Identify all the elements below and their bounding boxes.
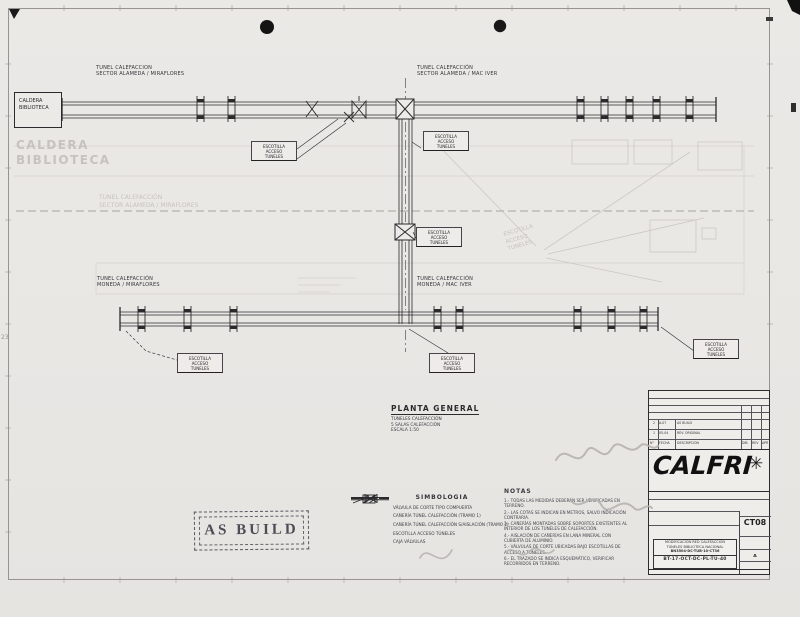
doc-revision-letter: A — [743, 554, 767, 559]
escotilla-callout: ESCOTILLAACCESOTUNELES — [429, 353, 475, 373]
rev-header-date: FECHA — [659, 441, 675, 445]
rev-header-no: N° — [650, 441, 658, 445]
caldera-biblioteca-box: CALDERABIBLIOTECA — [14, 92, 62, 128]
heating-pipes — [62, 102, 716, 326]
as-build-stamp: AS BUILD — [194, 510, 309, 550]
sheet-number: CT08 — [741, 518, 769, 527]
document-id-block: MODIFICACIÓN RED CALEFACCIÓN TÚNELES BIB… — [653, 539, 737, 569]
planta-general-title: PLANTA GENERAL TUNELES CALEFACCIÓN 5 SAL… — [391, 396, 509, 434]
margin-number: 23 — [1, 334, 9, 341]
drawing-code: BT-17-OCT-DC-PL-TU-40 — [654, 555, 736, 564]
rev-desc: AS BUILD — [677, 421, 739, 425]
ghost-sector-label: TUNEL CALEFACCIÓNSECTOR ALAMEDA / MIRAFL… — [99, 194, 198, 209]
ghost-caldera-label: CALDERABIBLIOTECA — [16, 138, 111, 168]
escotilla-callout: ESCOTILLAACCESOTUNELES — [251, 141, 297, 161]
notes-block: NOTAS 1.- TODAS LAS MEDIDAS DEBERÁN SER … — [504, 488, 628, 568]
escotilla-callout: ESCOTILLAACCESOTUNELES — [177, 353, 223, 373]
rev-date: A-07 — [659, 421, 675, 425]
rev-header-desc: DESCRIPCIÓN — [677, 441, 739, 445]
calfri-logo: CALFRI — [652, 451, 753, 480]
escotilla-callout: ESCOTILLAACCESOTUNELES — [416, 227, 462, 247]
rev-header-dib: DIB — [742, 441, 751, 445]
snowflake-burst-icon: ✳ — [749, 454, 763, 474]
rev-no: 1 — [650, 431, 658, 435]
escotilla-callout: ESCOTILLAACCESOTUNELES — [423, 131, 469, 151]
rev-date: 05-04 — [659, 431, 675, 435]
section-label-bottom-right: TUNEL CALEFACCIÓNMONEDA / MAC IVER — [417, 276, 473, 288]
section-label-top-left: TUNEL CALEFACCIONSECTOR ALAMEDA / MIRAFL… — [96, 65, 184, 77]
rev-header-apr: APR — [762, 441, 771, 445]
rev-no: 2 — [650, 421, 658, 425]
pipe-fittings — [138, 96, 693, 332]
ghost-underlay — [14, 146, 754, 294]
escotilla-callout: ESCOTILLAACCESOTUNELES — [693, 339, 739, 359]
scanned-drawing-sheet: 23 TUNEL CALEFACCIONSECTOR ALAMEDA / MIR… — [0, 0, 800, 617]
rev-desc: REV. ORIGINAL — [677, 431, 739, 435]
title-block: 2 A-07 AS BUILD 1 05-04 REV. ORIGINAL N°… — [648, 390, 770, 575]
rev-header-rev: REV — [752, 441, 761, 445]
section-label-top-right: TUNEL CALEFACCIÓNSECTOR ALAMEDA / MAC IV… — [417, 65, 497, 77]
section-label-bottom-left: TUNEL CALEFACCIÓNMONEDA / MIRAFLORES — [97, 276, 160, 288]
